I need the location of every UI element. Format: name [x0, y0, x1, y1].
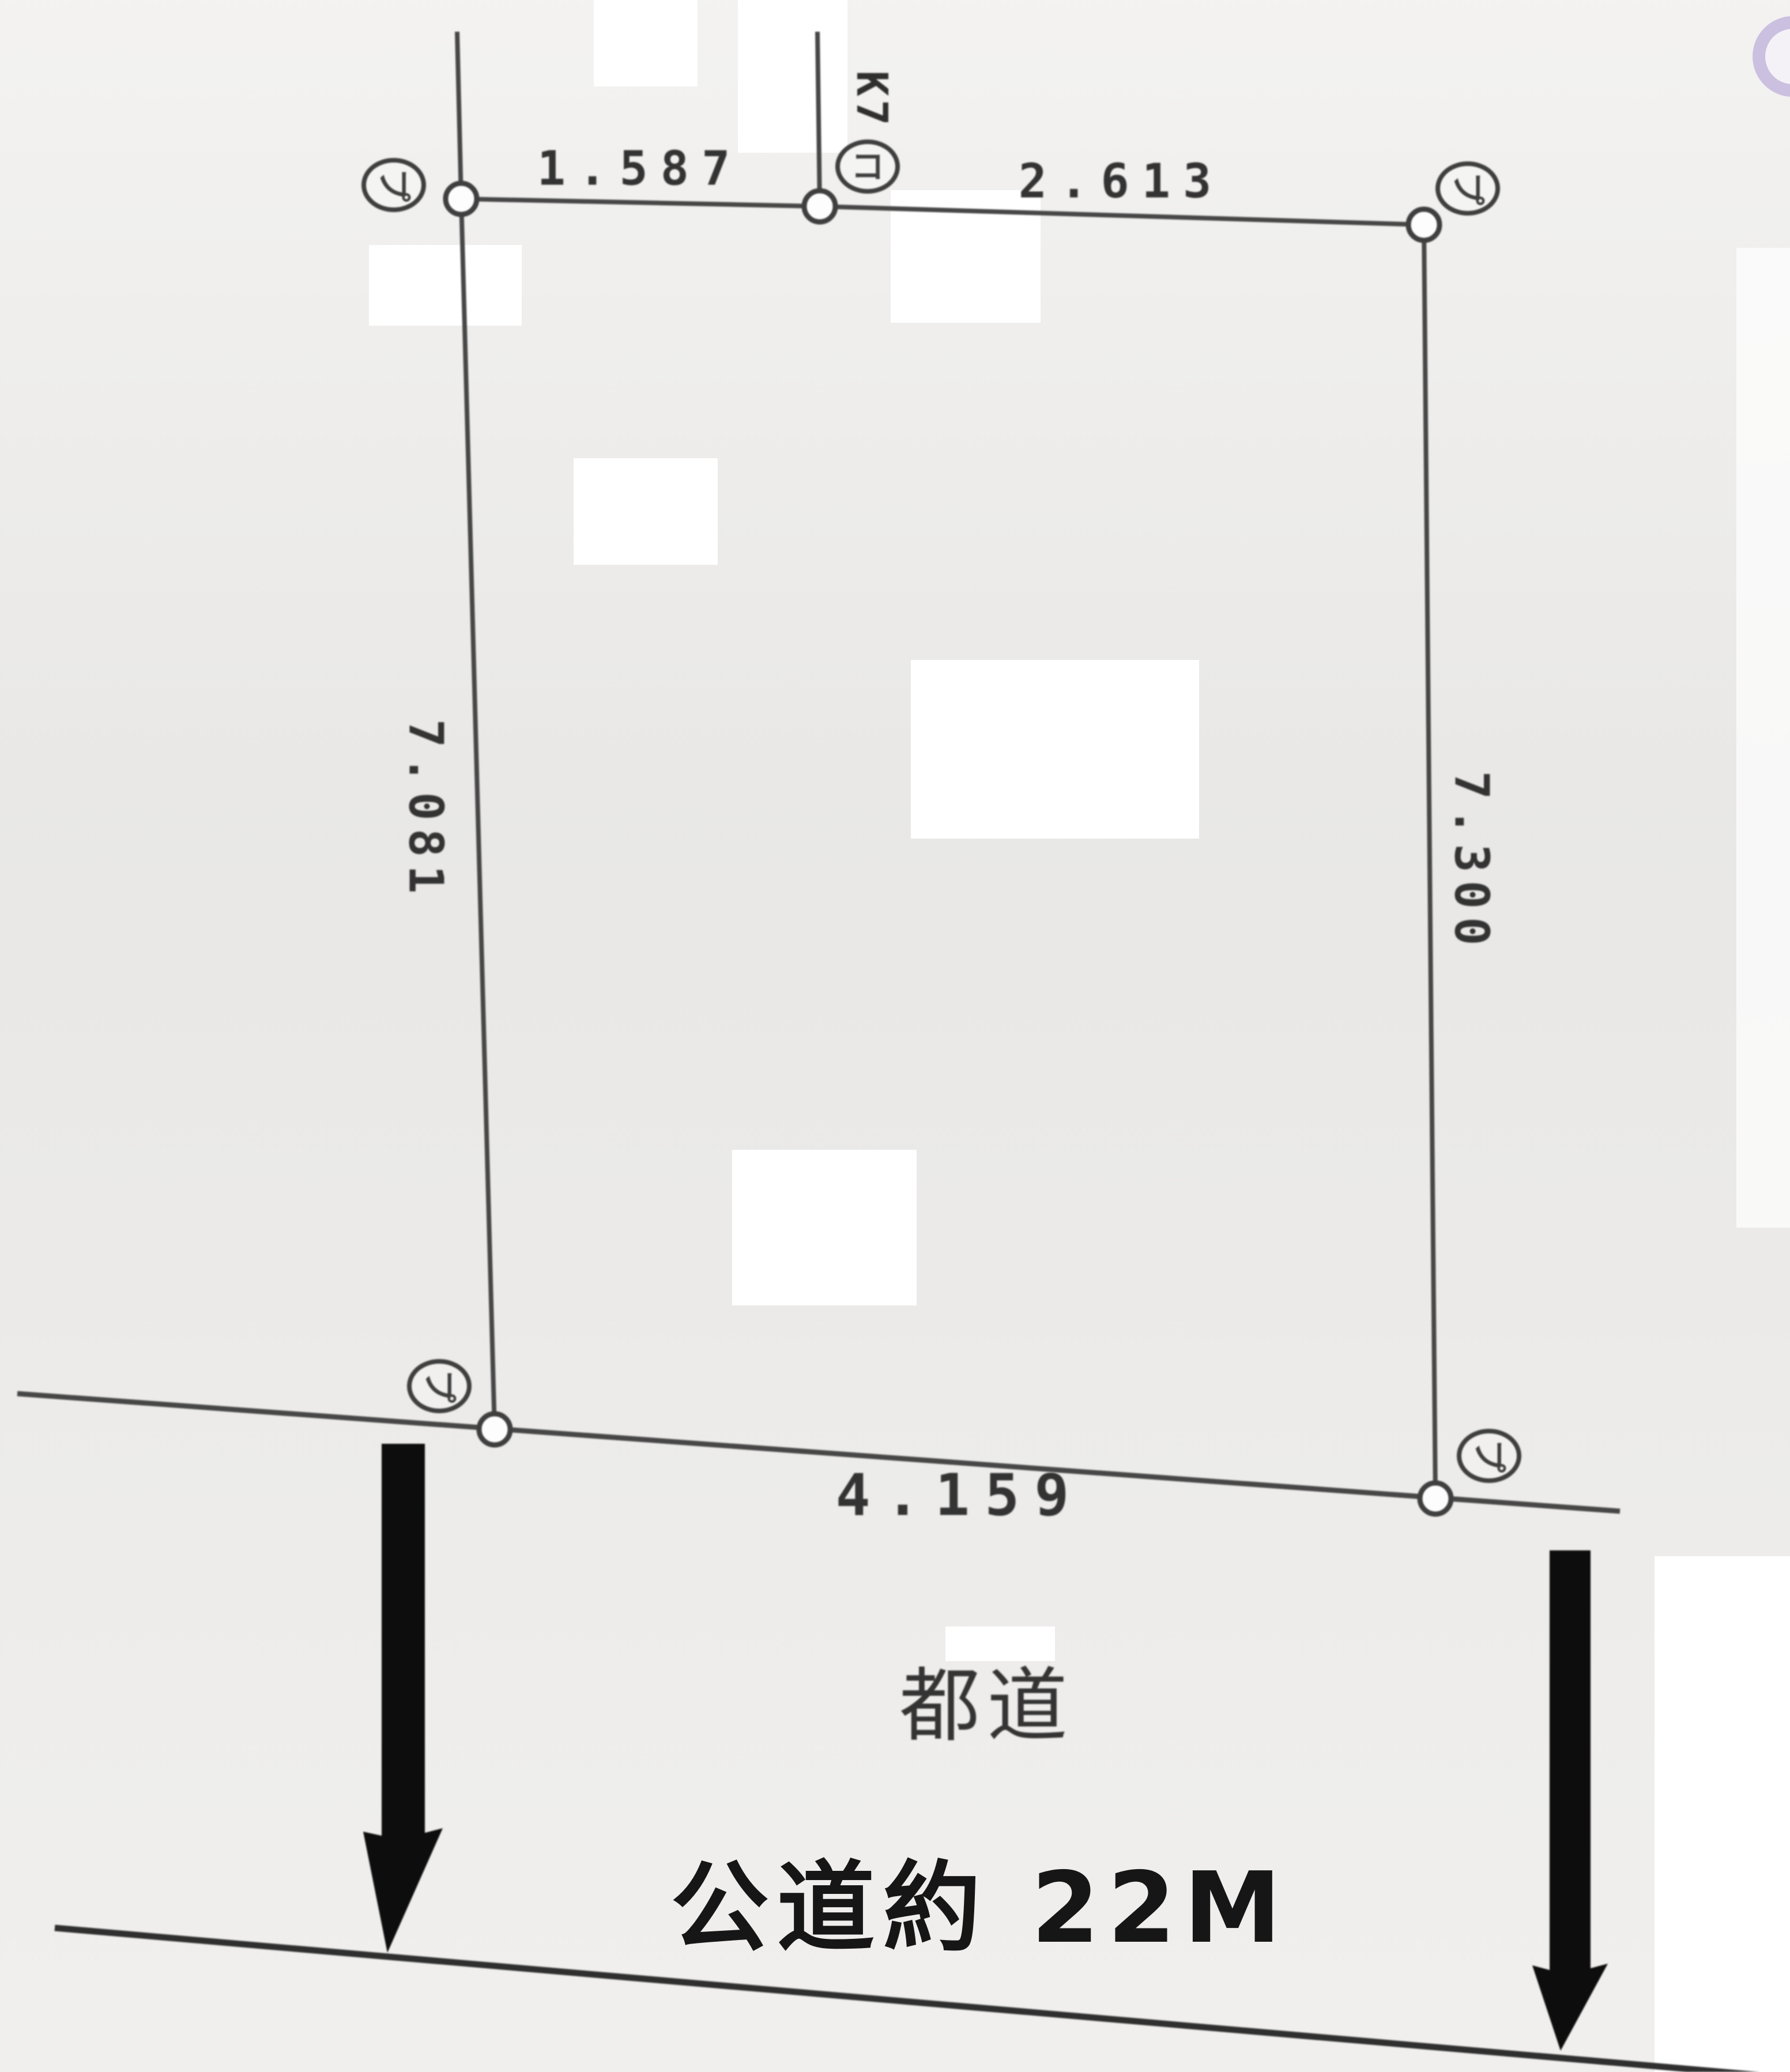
- stake-symbol: プ: [1451, 172, 1484, 205]
- stake-marker-bottom-left: プ: [407, 1359, 472, 1413]
- road-width-label: 公道約 22M: [671, 1828, 1290, 1970]
- dimension-left-side: 7.081: [398, 719, 453, 902]
- stake-marker-top-right: プ: [1435, 161, 1500, 216]
- stake-marker-top-middle: コ: [835, 139, 900, 194]
- arrow-down-right: [1532, 1550, 1608, 2051]
- stake-marker-bottom-right: プ: [1457, 1429, 1521, 1483]
- dimension-top-right-segment: 2.613: [1019, 154, 1224, 209]
- stake-marker-top-left: プ: [361, 158, 426, 212]
- survey-point-label-k7: K7: [847, 70, 896, 129]
- stake-symbol: プ: [377, 168, 410, 202]
- survey-diagram-page: プ コ プ プ プ 1.587 2.613 7.081 7.300 4.159 …: [0, 0, 1790, 2072]
- dimension-right-side: 7.300: [1444, 771, 1499, 954]
- dimension-top-left-segment: 1.587: [537, 142, 743, 197]
- arrow-down-left: [363, 1444, 443, 1953]
- road-name-label: 都道: [899, 1641, 1075, 1757]
- stake-symbol: プ: [423, 1369, 456, 1403]
- plot-linework: [0, 0, 1790, 2072]
- stake-symbol: プ: [1472, 1439, 1506, 1473]
- stake-symbol: コ: [851, 150, 884, 183]
- dimension-bottom-side: 4.159: [835, 1462, 1084, 1529]
